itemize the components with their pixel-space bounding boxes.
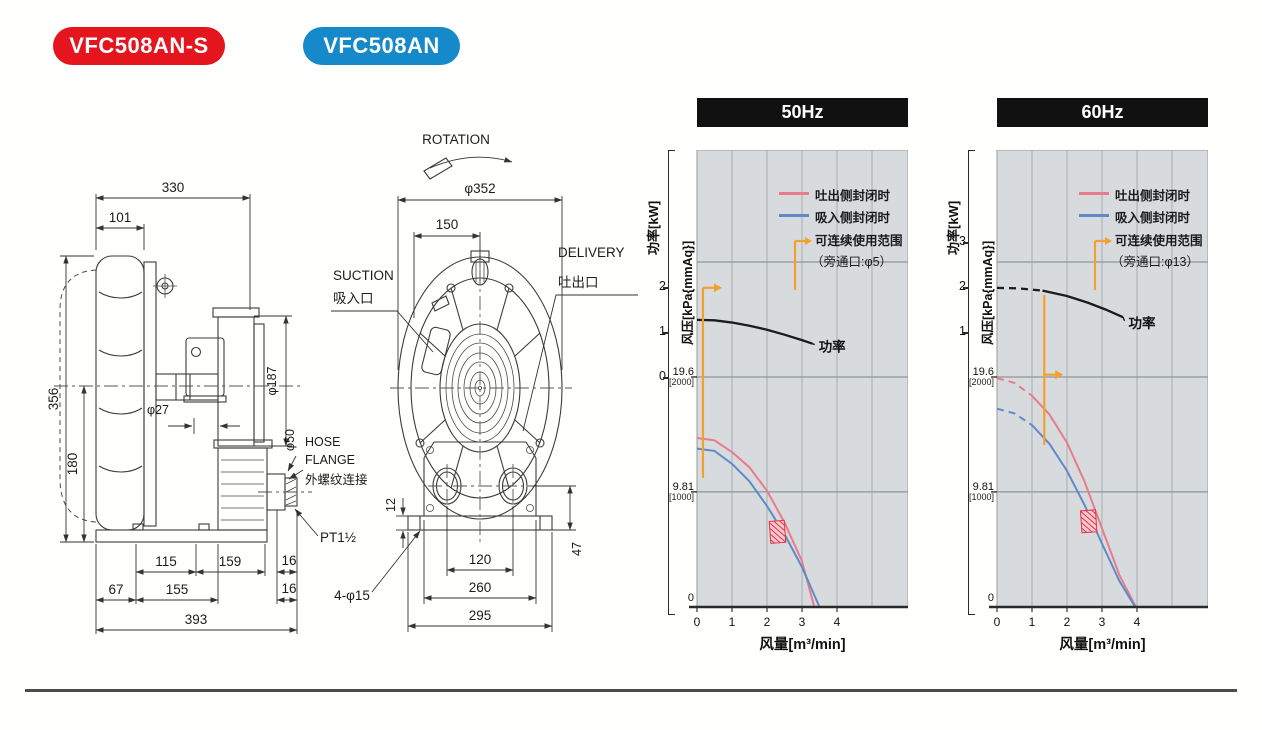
dim-4-phi15: 4-φ15 (334, 588, 370, 603)
power-curve-label: 功率 (819, 339, 846, 355)
dim-12: 12 (384, 498, 398, 512)
side-view-drawing: 330 101 356 180 φ27 φ187 φ50 HOSE FLANGE… (46, 180, 368, 634)
dim-356: 356 (46, 388, 61, 411)
hose-flange-label-cn: 外螺纹连接 (305, 472, 368, 487)
dim-120: 120 (469, 552, 492, 567)
model-badge-vfc508an-s: VFC508AN-S (53, 27, 225, 65)
operating-point-marker (769, 520, 785, 543)
power-tick-mark (663, 287, 668, 289)
rotation-label: ROTATION (422, 132, 490, 147)
chart-60hz: 60Hz 功率[kW] 风压[kPa{mmAq}] 功率 风量[m³/min] … (935, 92, 1225, 667)
power-tick-mark (963, 332, 968, 334)
operating-point-marker (1080, 510, 1096, 533)
x-tick-label: 4 (830, 615, 844, 629)
power-axis-label: 功率[kW] (643, 201, 662, 255)
suction-label-en: SUCTION (333, 268, 394, 283)
dim-101: 101 (109, 210, 132, 225)
front-view-drawing: ROTATION φ352 150 SUCTION 吸入口 DELIVERY 吐… (331, 132, 638, 632)
power-tick-label: 3 (948, 234, 966, 248)
pressure-tick-label: 9.81[1000] (654, 482, 694, 502)
legend-label: 吐出侧封闭时 (815, 185, 890, 204)
dim-393: 393 (185, 612, 208, 627)
legend-sublabel: （旁通口:φ5） (811, 251, 892, 270)
chart-legend: 吐出侧封闭时吸入侧封闭时可连续使用范围（旁通口:φ5） (775, 174, 915, 284)
chart-title-50hz: 50Hz (697, 98, 908, 127)
legend-line-suction-closed (1079, 214, 1109, 217)
suction-label-cn: 吸入口 (333, 291, 374, 306)
dim-pt1-1-2: PT1½ (320, 530, 356, 545)
legend-line-suction-closed (779, 214, 809, 217)
power-tick-mark (963, 287, 968, 289)
delivery-label-en: DELIVERY (558, 245, 625, 260)
footer-divider (25, 689, 1237, 692)
technical-drawing: 330 101 356 180 φ27 φ187 φ50 HOSE FLANGE… (30, 95, 675, 680)
dim-phi50: φ50 (283, 429, 297, 451)
hose-flange-label-1: HOSE (305, 435, 340, 449)
dim-67: 67 (108, 582, 123, 597)
pressure-tick-label: 19.6[2000] (654, 367, 694, 387)
dim-phi352: φ352 (464, 181, 495, 196)
dim-16-lower: 16 (281, 581, 296, 596)
pressure-tick-label: 19.6[2000] (954, 367, 994, 387)
catalog-page: { "badges": [ {"label": "VFC508AN-S", "c… (0, 0, 1262, 730)
chart-title-60hz: 60Hz (997, 98, 1208, 127)
dim-150: 150 (436, 217, 459, 232)
x-tick-label: 3 (1095, 615, 1109, 629)
dim-phi187: φ187 (265, 366, 279, 395)
legend-line-delivery-closed (1079, 192, 1109, 195)
x-tick-label: 1 (1025, 615, 1039, 629)
power-curve-label: 功率 (1129, 315, 1157, 331)
x-tick-label: 2 (760, 615, 774, 629)
dim-16-upper: 16 (281, 553, 296, 568)
x-tick-label: 0 (690, 615, 704, 629)
legend-label: 吸入侧封闭时 (1115, 207, 1190, 226)
power-tick-mark (663, 332, 668, 334)
dim-155: 155 (166, 582, 189, 597)
model-badge-vfc508an: VFC508AN (303, 27, 460, 65)
legend-label: 可连续使用范围 (1115, 230, 1203, 249)
x-tick-label: 2 (1060, 615, 1074, 629)
x-axis-label: 风量[m³/min] (997, 633, 1208, 654)
delivery-label-cn: 吐出口 (558, 275, 599, 290)
power-tick-label: 1 (648, 324, 666, 338)
rotation-arrow (430, 157, 512, 168)
dim-115: 115 (155, 554, 177, 569)
chart-legend: 吐出侧封闭时吸入侧封闭时可连续使用范围（旁通口:φ13） (1075, 174, 1215, 284)
legend-sublabel: （旁通口:φ13） (1111, 251, 1199, 270)
legend-label: 吸入侧封闭时 (815, 207, 890, 226)
legend-label: 吐出侧封闭时 (1115, 185, 1190, 204)
legend-line-delivery-closed (779, 192, 809, 195)
pressure-tick-label: 9.81[1000] (954, 482, 994, 502)
power-tick-label: 2 (648, 279, 666, 293)
power-tick-label: 2 (948, 279, 966, 293)
power-tick-label: 1 (948, 324, 966, 338)
x-axis-label: 风量[m³/min] (697, 633, 908, 654)
power-tick-mark (963, 242, 968, 244)
dim-260: 260 (469, 580, 492, 595)
x-tick-label: 4 (1130, 615, 1144, 629)
pressure-tick-label: 0 (954, 593, 994, 603)
hose-flange-label-2: FLANGE (305, 453, 355, 467)
dim-180: 180 (65, 453, 80, 476)
dim-159: 159 (219, 554, 242, 569)
dim-phi27: φ27 (147, 403, 169, 417)
x-tick-label: 1 (725, 615, 739, 629)
x-tick-label: 0 (990, 615, 1004, 629)
dim-330: 330 (162, 180, 185, 195)
legend-label: 可连续使用范围 (815, 230, 903, 249)
pressure-tick-label: 0 (654, 593, 694, 603)
dim-47: 47 (570, 542, 584, 556)
chart-50hz: 50Hz 功率[kW] 风压[kPa{mmAq}] 功率 风量[m³/min] … (635, 92, 925, 667)
x-tick-label: 3 (795, 615, 809, 629)
dim-295: 295 (469, 608, 492, 623)
